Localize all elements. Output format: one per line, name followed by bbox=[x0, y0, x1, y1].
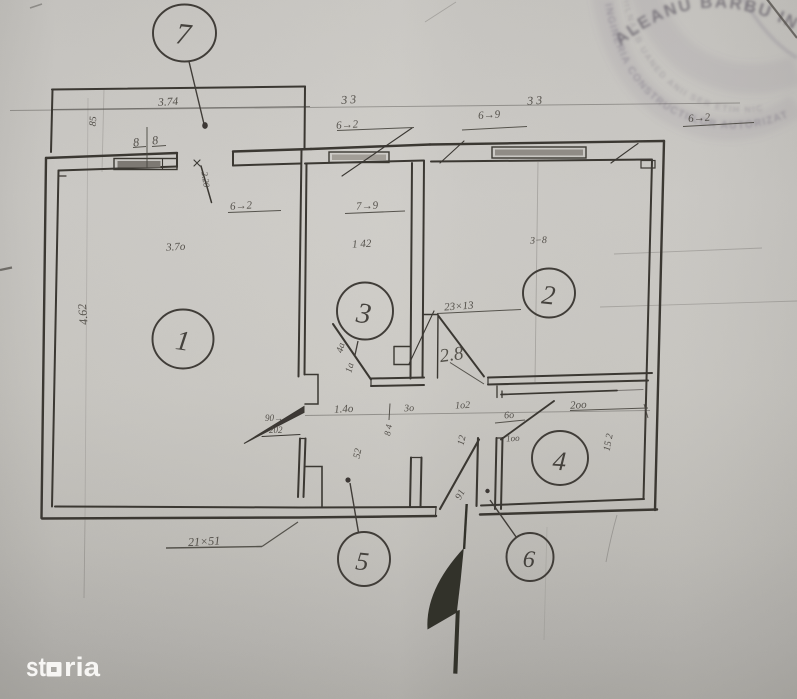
svg-text:6→2: 6→2 bbox=[688, 111, 711, 125]
svg-text:3.74: 3.74 bbox=[157, 96, 179, 109]
svg-text:1.4o: 1.4o bbox=[334, 403, 354, 416]
svg-text:6o: 6o bbox=[504, 410, 515, 422]
svg-text:3 3: 3 3 bbox=[340, 92, 357, 107]
svg-text:202: 202 bbox=[269, 425, 283, 435]
svg-text:6: 6 bbox=[522, 547, 536, 574]
svg-text:3.7o: 3.7o bbox=[165, 241, 186, 254]
svg-text:3o: 3o bbox=[403, 403, 415, 415]
svg-text:1o2: 1o2 bbox=[455, 400, 471, 412]
svg-text:st: st bbox=[26, 652, 46, 682]
svg-text:7→9: 7→9 bbox=[356, 200, 379, 213]
svg-text:1oo: 1oo bbox=[506, 433, 521, 444]
svg-text:4: 4 bbox=[552, 446, 568, 477]
svg-text:4.62: 4.62 bbox=[75, 303, 91, 325]
svg-text:1 42: 1 42 bbox=[352, 238, 372, 251]
svg-text:90→: 90→ bbox=[265, 413, 283, 423]
svg-text:ria: ria bbox=[64, 652, 101, 682]
svg-text:8 4: 8 4 bbox=[382, 423, 394, 436]
svg-text:85: 85 bbox=[88, 116, 100, 127]
svg-text:23×13: 23×13 bbox=[444, 299, 475, 313]
svg-text:3−8: 3−8 bbox=[529, 235, 547, 247]
svg-text:3 3: 3 3 bbox=[526, 93, 543, 108]
svg-text:6→2: 6→2 bbox=[230, 199, 253, 213]
svg-text:6→9: 6→9 bbox=[478, 108, 501, 122]
